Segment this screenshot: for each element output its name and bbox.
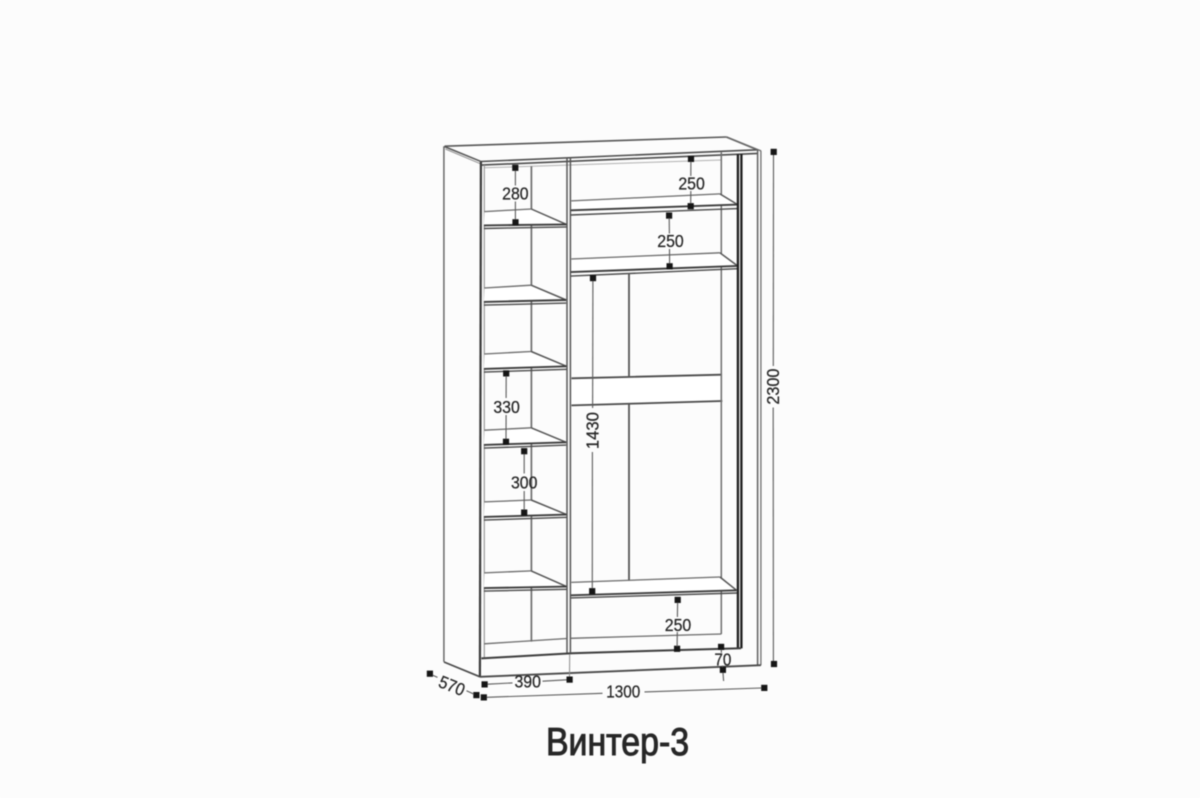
svg-text:Винтер-3: Винтер-3 bbox=[546, 720, 689, 764]
svg-text:1300: 1300 bbox=[606, 682, 640, 702]
svg-text:390: 390 bbox=[514, 672, 541, 692]
svg-text:250: 250 bbox=[665, 615, 692, 635]
svg-text:280: 280 bbox=[502, 184, 529, 204]
svg-text:250: 250 bbox=[678, 174, 705, 194]
svg-text:330: 330 bbox=[493, 397, 520, 417]
svg-text:250: 250 bbox=[657, 231, 684, 251]
svg-text:70: 70 bbox=[714, 649, 731, 669]
svg-text:2300: 2300 bbox=[763, 368, 783, 404]
svg-text:300: 300 bbox=[511, 473, 538, 493]
svg-text:1430: 1430 bbox=[582, 412, 602, 449]
